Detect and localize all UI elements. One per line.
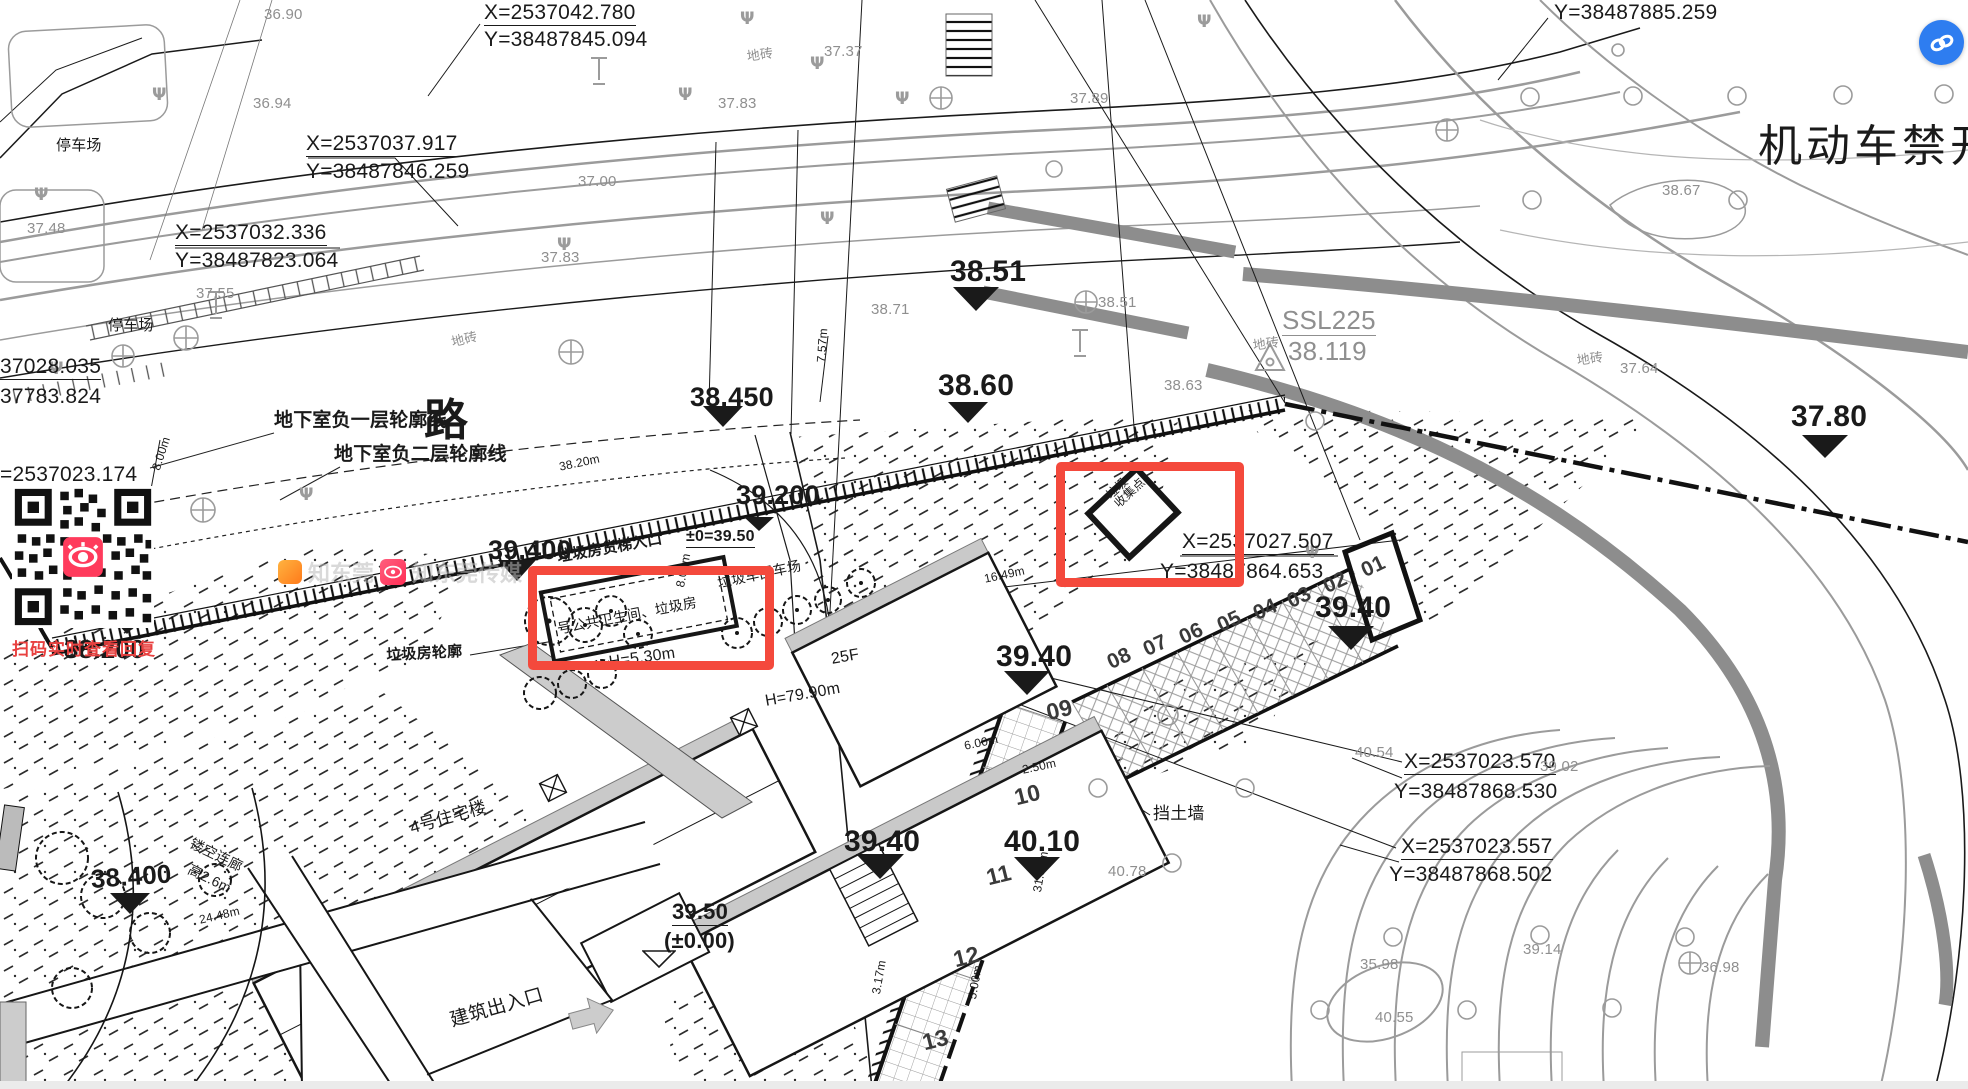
svg-text:Ψ: Ψ (678, 85, 692, 105)
svg-text:Ψ: Ψ (1197, 12, 1211, 32)
svg-text:Ψ: Ψ (810, 54, 824, 74)
brand-watermark: 知东莞 知东莞传媒 (278, 556, 522, 588)
share-link-button[interactable] (1919, 20, 1964, 65)
svg-text:Ψ: Ψ (299, 485, 313, 505)
brand-eye-icon (380, 559, 406, 585)
qr-caption: 扫码实时查看回复 (12, 635, 160, 660)
svg-text:Ψ: Ψ (895, 89, 909, 109)
brand-watermark-text: 知东莞传媒 (412, 556, 522, 588)
svg-text:Ψ: Ψ (34, 185, 48, 205)
red-highlight-box (1056, 462, 1244, 587)
basement-outline-lines (60, 420, 860, 555)
svg-text:Ψ: Ψ (820, 209, 834, 229)
brand-orange-icon (278, 560, 302, 584)
svg-text:Ψ: Ψ (1305, 543, 1319, 563)
qr-watermark: 扫码实时查看回复 (12, 486, 160, 660)
svg-text:Ψ: Ψ (557, 235, 571, 255)
qr-code-image (12, 486, 154, 628)
site-plan-drawing: ΨΨΨ ΨΨΨ ΨΨΨ ΨΨΨ (0, 0, 1968, 1089)
svg-text:Ψ: Ψ (49, 359, 63, 379)
brand-watermark-text: 知东莞 (308, 556, 374, 588)
svg-text:Ψ: Ψ (152, 85, 166, 105)
road-median-bands (983, 208, 1968, 1047)
cad-site-plan-viewer: ΨΨΨ ΨΨΨ ΨΨΨ ΨΨΨ X=2537042.780Y=38487845.… (0, 0, 1968, 1089)
red-highlight-box (528, 566, 774, 670)
viewer-bottom-strip (0, 1081, 1968, 1089)
benchmark-symbol (1256, 344, 1284, 370)
svg-text:Ψ: Ψ (740, 9, 754, 29)
crosswalk-stripes (946, 14, 1006, 222)
link-icon (1929, 30, 1955, 56)
